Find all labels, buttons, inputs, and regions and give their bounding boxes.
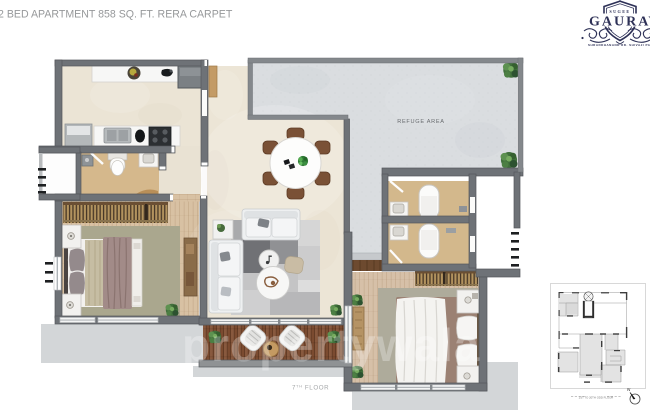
svg-text:SHRADDHANAND RD. SHIVAJI PARK.: SHRADDHANAND RD. SHIVAJI PARK. DADAR MUM… bbox=[588, 43, 650, 47]
svg-text:propertywala: propertywala bbox=[182, 319, 480, 371]
svg-text:1ST TO 20TH ODD FLOOR: 1ST TO 20TH ODD FLOOR bbox=[579, 395, 614, 399]
svg-text:2 BED APARTMENT 858 SQ. FT. RE: 2 BED APARTMENT 858 SQ. FT. RERA CARPET bbox=[0, 9, 233, 21]
svg-text:SUGEE: SUGEE bbox=[609, 9, 630, 14]
svg-text:GAURAV: GAURAV bbox=[589, 15, 650, 30]
svg-text:REFUGE AREA: REFUGE AREA bbox=[397, 119, 445, 125]
